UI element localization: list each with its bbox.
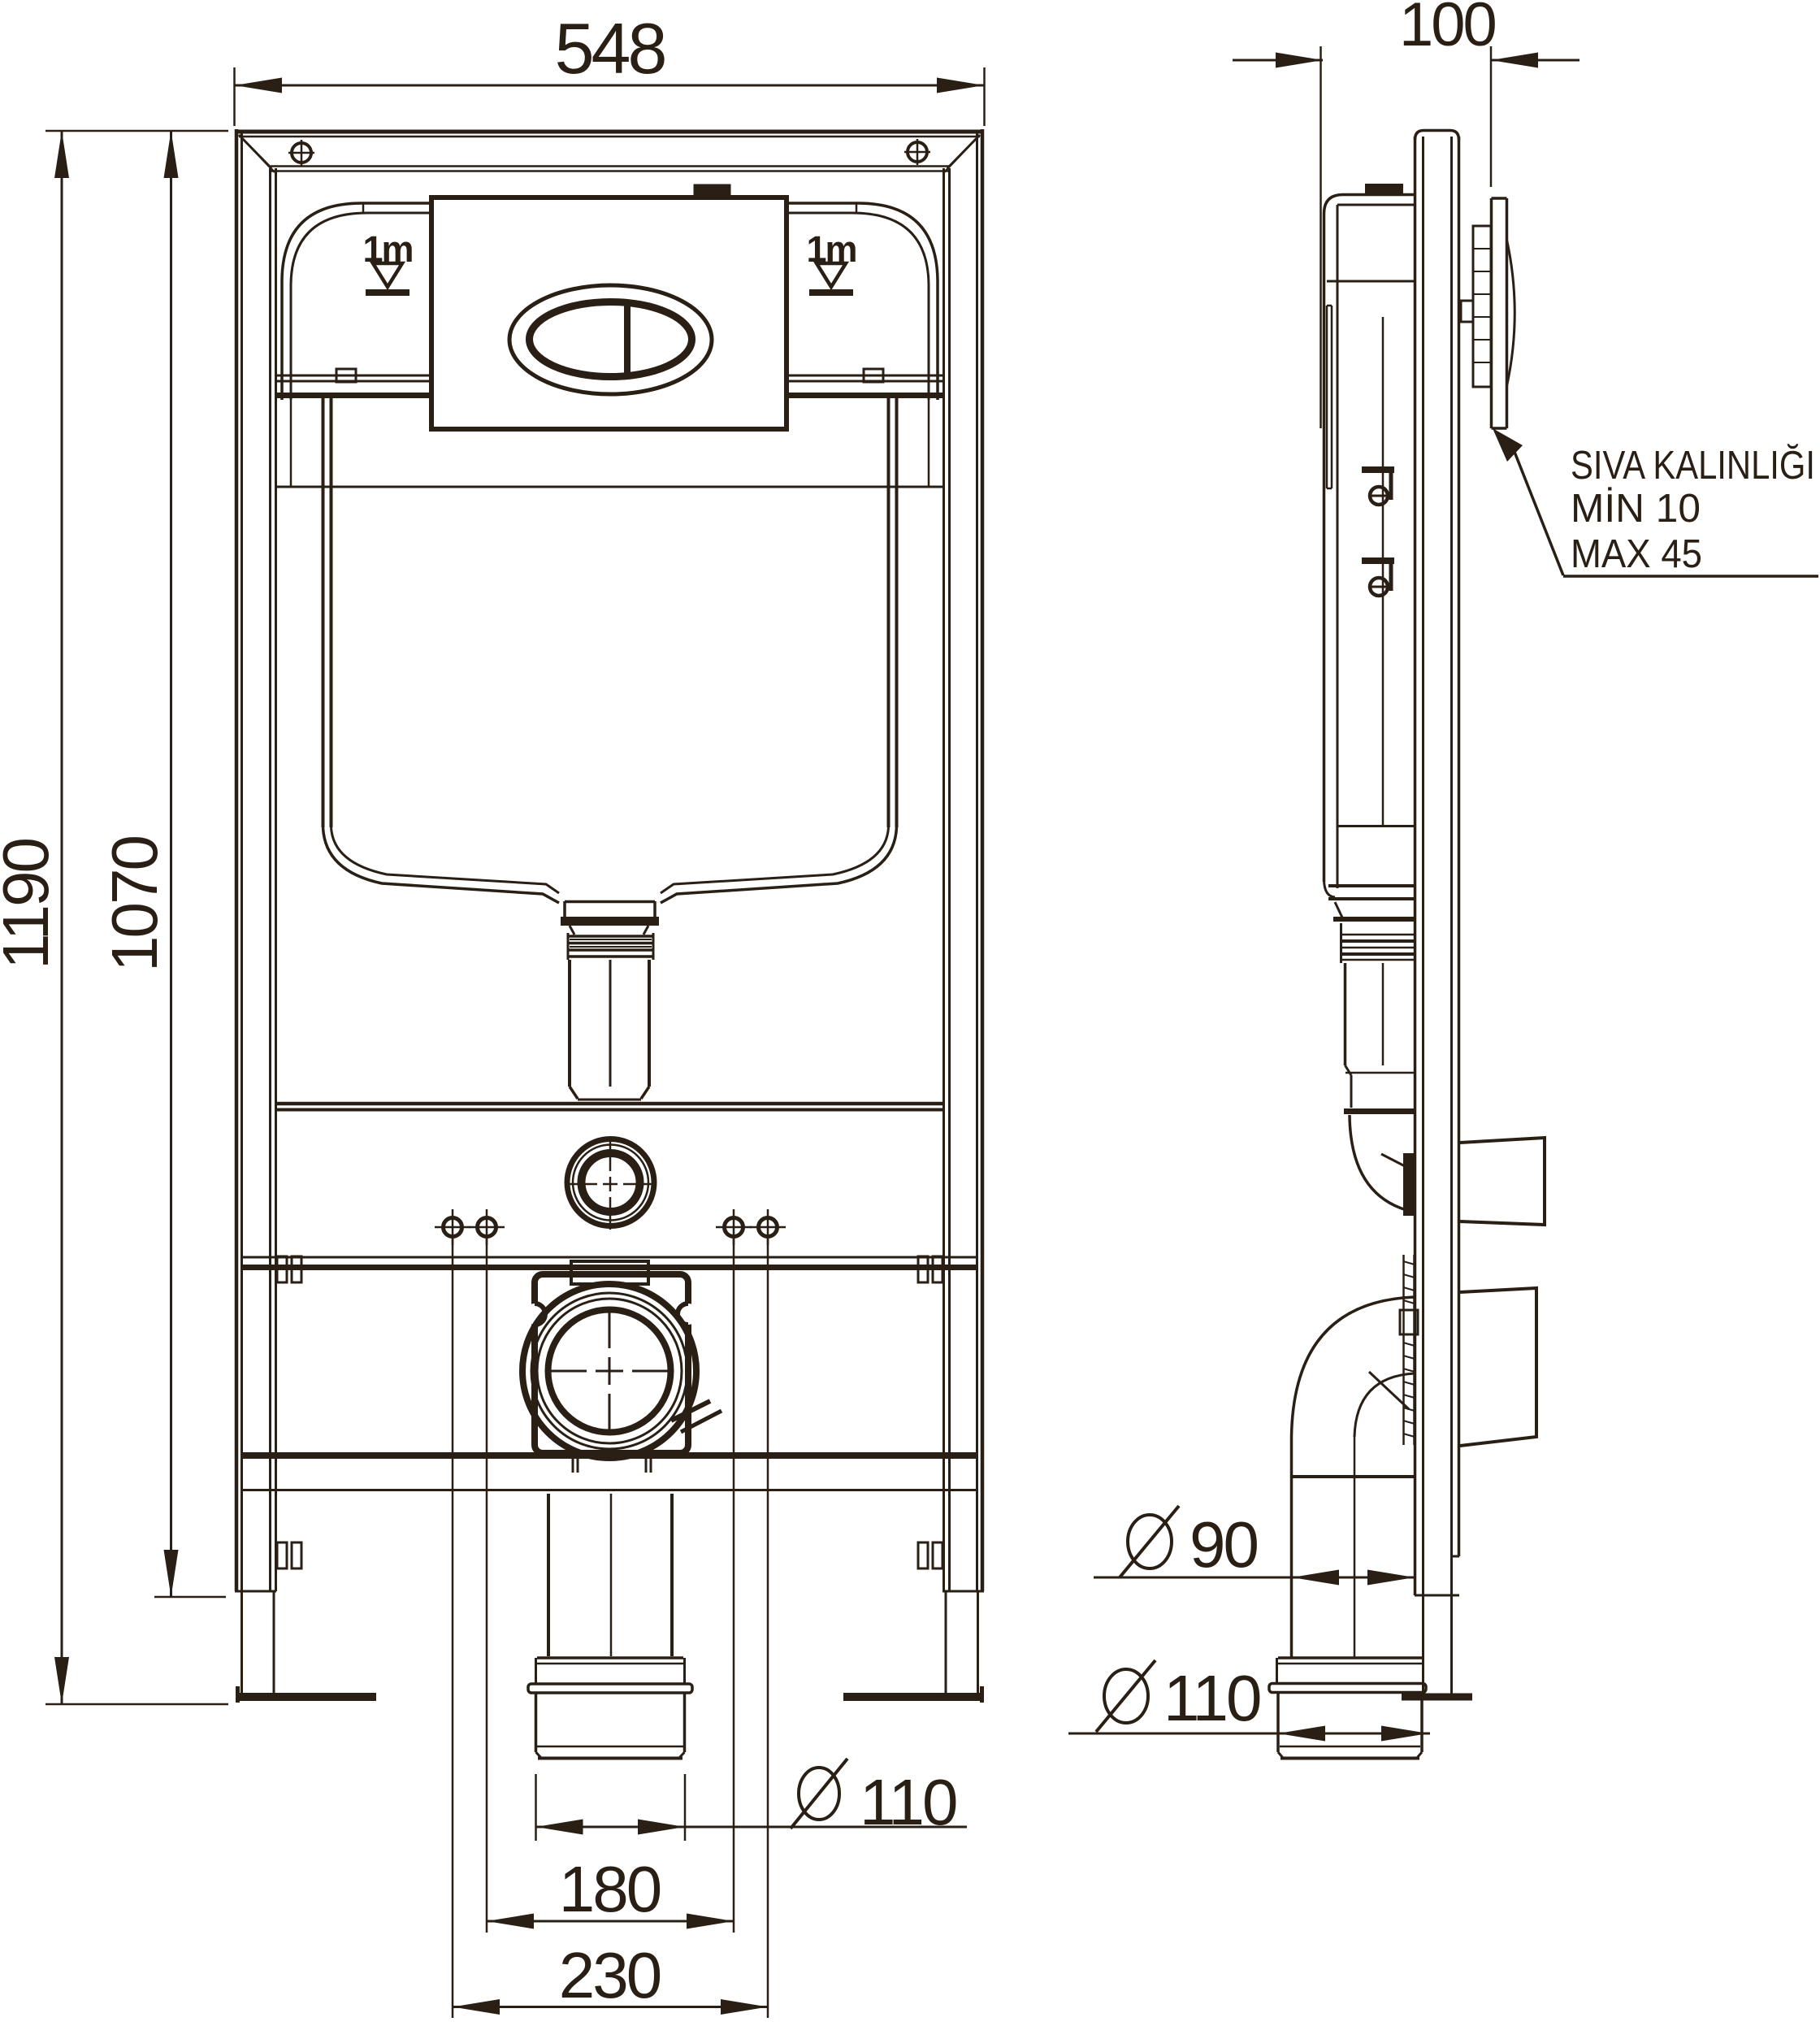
svg-text:110: 110 — [1163, 1662, 1260, 1734]
svg-text:1070: 1070 — [98, 837, 171, 972]
svg-text:100: 100 — [1399, 0, 1496, 59]
svg-text:MAX 45: MAX 45 — [1571, 532, 1702, 576]
svg-text:1m: 1m — [806, 228, 856, 270]
svg-text:548: 548 — [555, 8, 665, 89]
svg-text:180: 180 — [559, 1853, 661, 1925]
svg-text:90: 90 — [1189, 1508, 1257, 1581]
svg-text:SIVA KALINLIĞI: SIVA KALINLIĞI — [1571, 444, 1815, 488]
svg-text:230: 230 — [559, 1939, 661, 2011]
svg-text:1m: 1m — [362, 228, 412, 270]
svg-text:110: 110 — [860, 1766, 956, 1838]
svg-text:1190: 1190 — [0, 839, 62, 970]
svg-text:MİN 10: MİN 10 — [1571, 487, 1701, 531]
